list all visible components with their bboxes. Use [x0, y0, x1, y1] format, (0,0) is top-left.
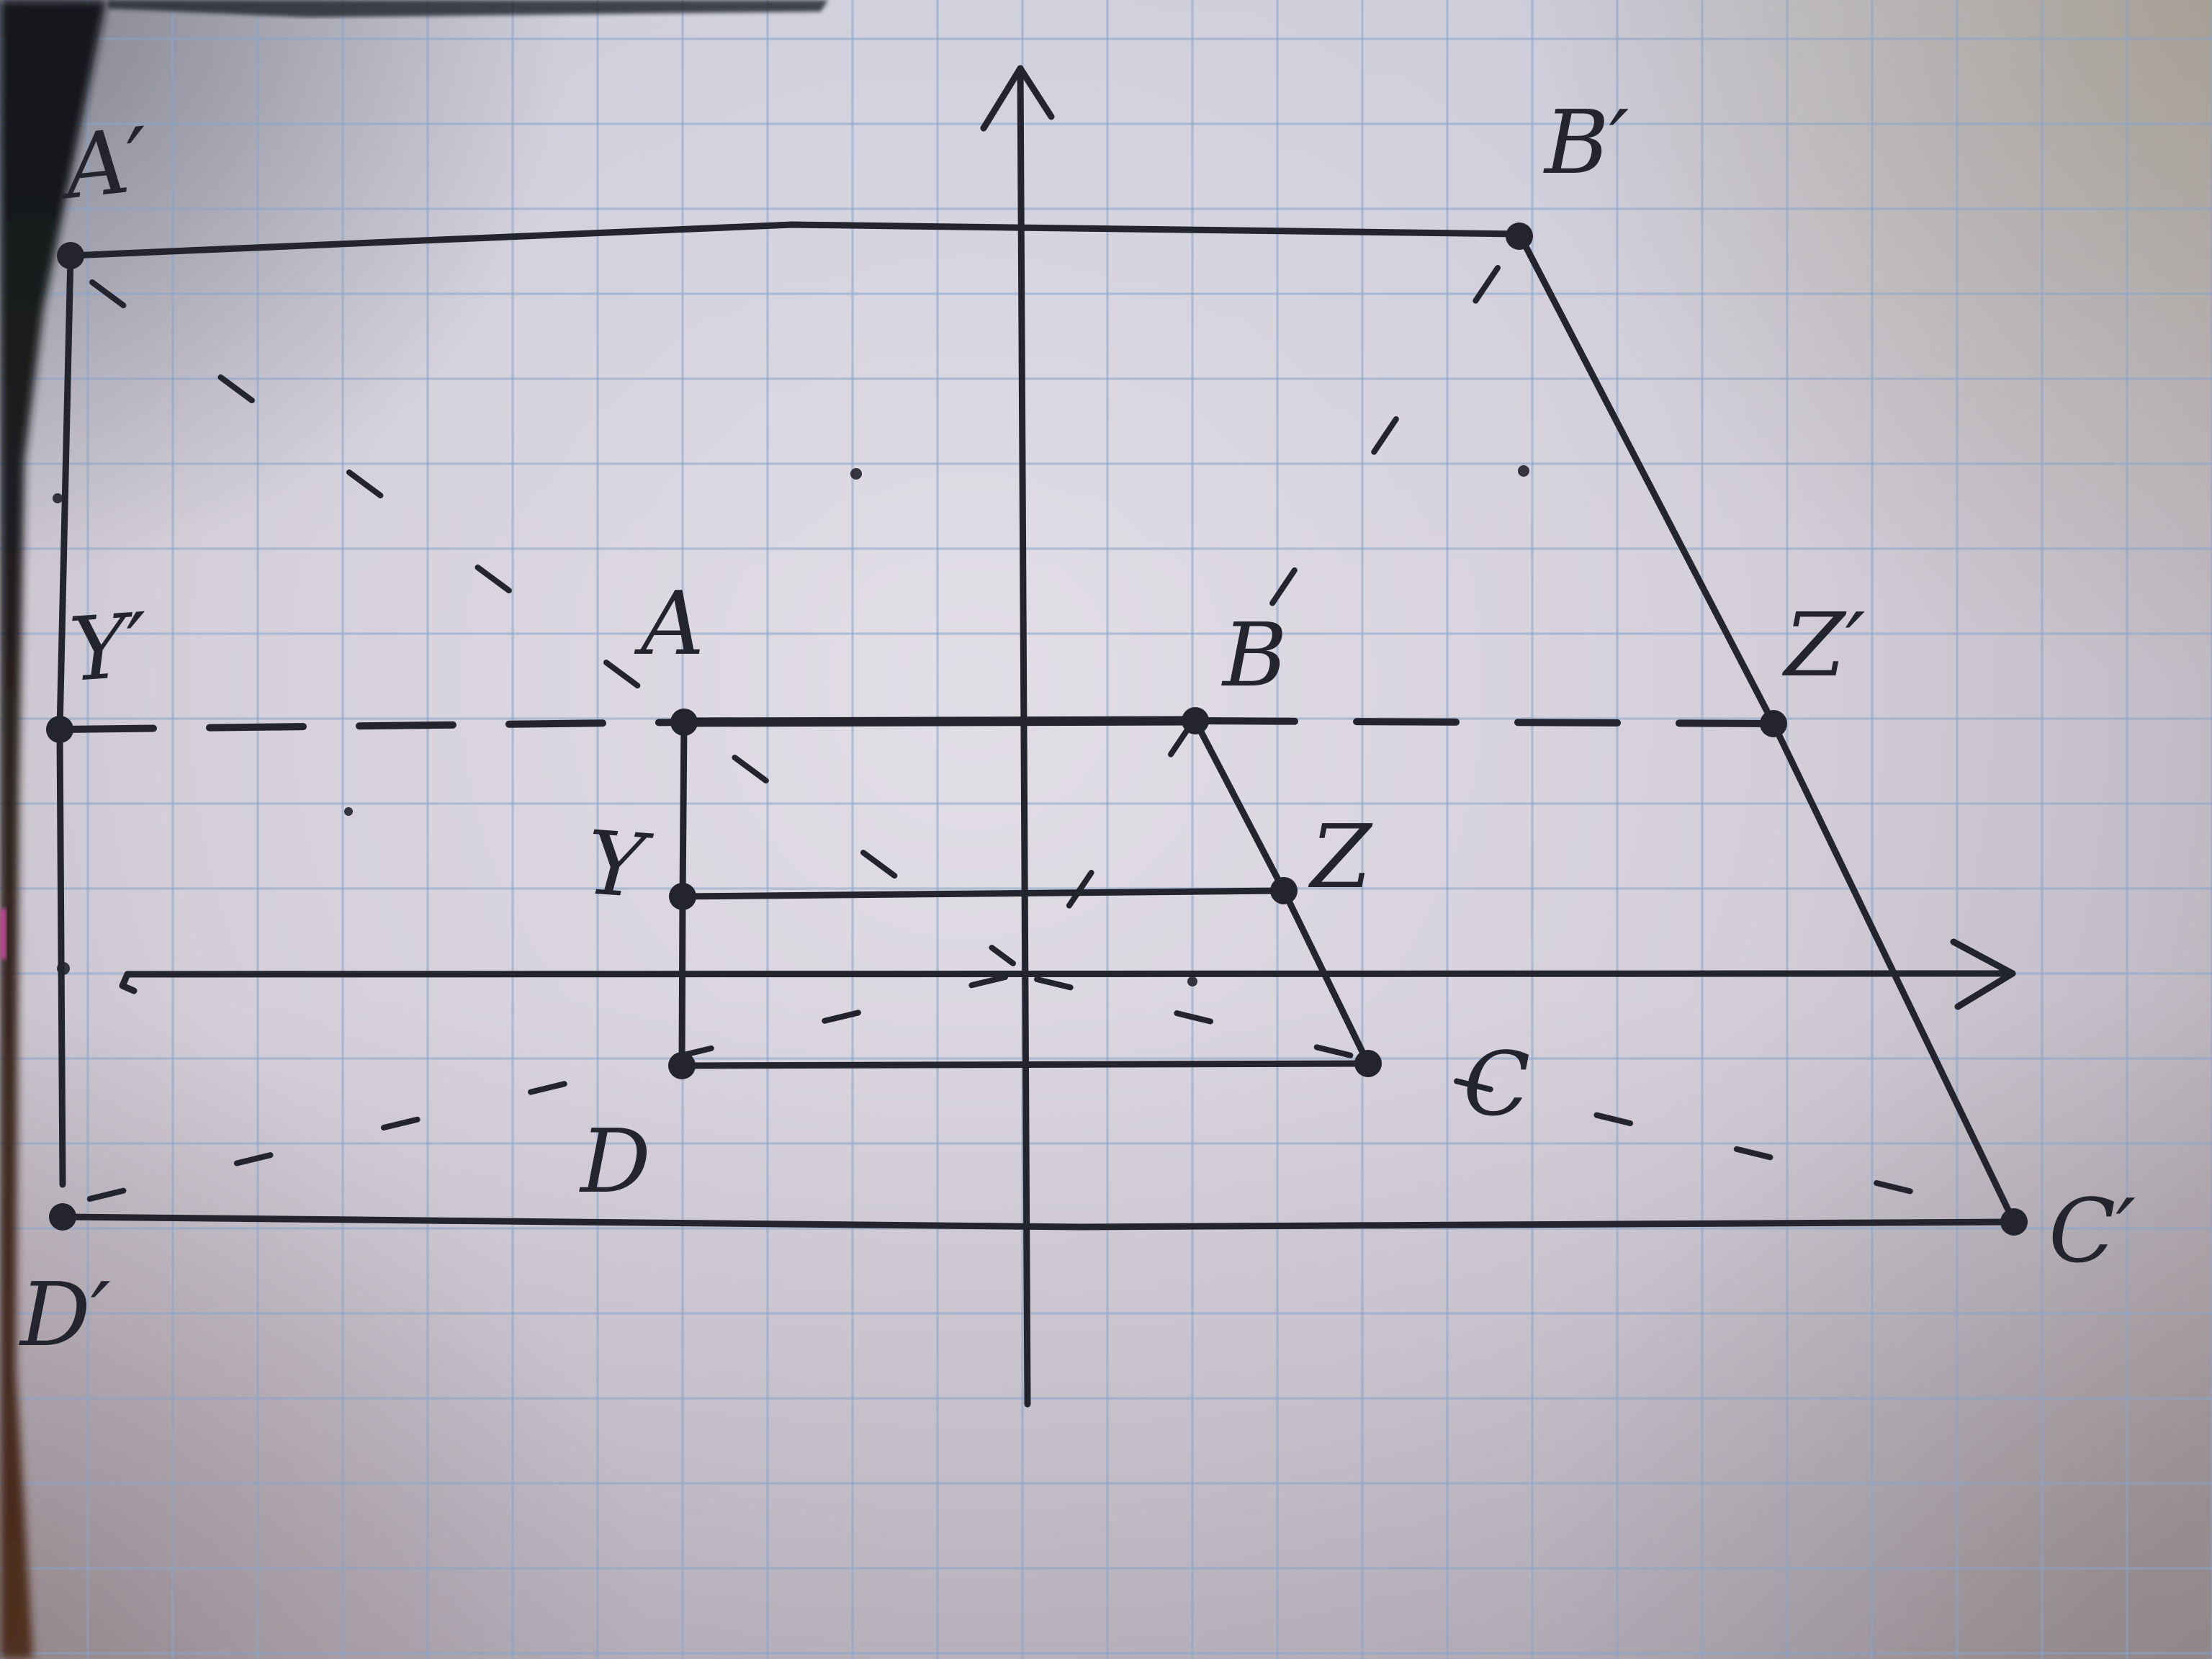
point-label-b: B	[1221, 604, 1287, 706]
point-dot-b-prime	[1506, 222, 1533, 250]
point-label-c-prime: C′	[2049, 1180, 2136, 1282]
point-label-d-prime: D′	[19, 1264, 111, 1366]
stray-ink-dot	[1518, 465, 1529, 477]
point-dot-y	[669, 883, 696, 910]
point-label-a: A	[634, 572, 704, 675]
stray-ink-dot	[57, 962, 70, 975]
point-dot-a-prime	[57, 242, 84, 269]
magenta-edge-mark	[0, 909, 6, 959]
point-dot-d	[668, 1052, 696, 1079]
point-dot-c-prime	[2000, 1208, 2028, 1236]
stray-ink-dot	[53, 493, 63, 503]
point-dot-b	[1182, 707, 1209, 734]
point-dot-c	[1354, 1050, 1382, 1077]
point-dot-d-prime	[49, 1203, 76, 1231]
point-label-z: Z	[1308, 806, 1373, 908]
point-label-c: C	[1463, 1033, 1530, 1136]
point-dot-y-prime	[46, 716, 73, 743]
photo-of-graph-paper-dilation-diagram: A′B′Y′Z′D′C′ABYZDC	[0, 0, 2212, 1659]
point-label-z-prime: Z′	[1781, 594, 1865, 696]
point-label-d: D	[579, 1110, 651, 1213]
figure-svg: A′B′Y′Z′D′C′ABYZDC	[0, 0, 2212, 1659]
edge-a-b	[684, 721, 1195, 722]
axis-horizontal	[127, 974, 2013, 974]
point-dot-a	[670, 709, 698, 736]
bottom-shade	[0, 0, 2212, 1659]
point-label-b-prime: B′	[1543, 91, 1629, 194]
point-label-y-prime: Y′	[66, 594, 151, 701]
point-dot-z-prime	[1760, 710, 1787, 737]
stray-ink-dot	[1187, 976, 1197, 986]
stray-ink-dot	[850, 468, 862, 480]
point-dot-z	[1270, 877, 1298, 904]
stray-ink-dot	[344, 807, 353, 816]
